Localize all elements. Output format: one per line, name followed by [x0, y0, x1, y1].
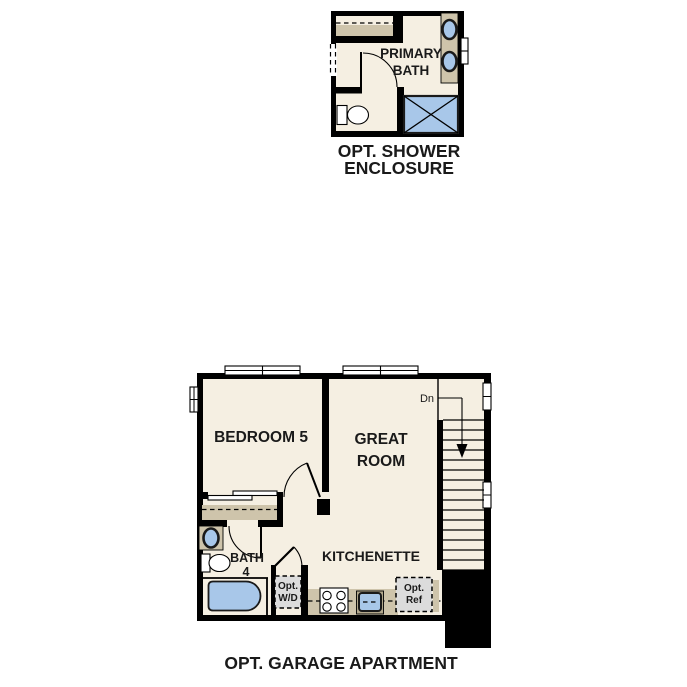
- stair-window-lower: [483, 482, 491, 508]
- kitchenette-label: KITCHENETTE: [322, 548, 420, 564]
- bath-window: [461, 38, 468, 64]
- counter-end-strip: [433, 580, 439, 612]
- washer-dryer-label-line1: Opt.: [278, 581, 298, 592]
- primary-bath-label-line2: BATH: [393, 63, 430, 78]
- closet-shelf: [202, 505, 277, 520]
- shower-enclosure: [404, 96, 458, 133]
- bedroom-window: [225, 366, 300, 375]
- primary-bath-plan: PRIMARY BATH: [329, 11, 468, 137]
- sink-basin: [204, 529, 219, 548]
- great-room-label-line2: ROOM: [357, 453, 405, 470]
- stairs-dn-label: Dn: [420, 393, 434, 405]
- primary-bath-label-line1: PRIMARY: [380, 46, 442, 61]
- bedroom-label: BEDROOM 5: [214, 429, 308, 446]
- great-room-label-line1: GREAT: [354, 431, 408, 448]
- floor-plan-page: PRIMARY BATH OPT. SHOWER ENCLOSURE: [0, 0, 687, 687]
- sink-basin: [443, 52, 457, 71]
- bathtub: [209, 582, 261, 611]
- stair-window-upper: [483, 383, 491, 410]
- toilet: [337, 106, 369, 125]
- sink-basin: [443, 20, 457, 39]
- fridge-label-line1: Opt.: [404, 583, 424, 594]
- floor-plan-canvas: PRIMARY BATH OPT. SHOWER ENCLOSURE: [0, 0, 687, 687]
- stair-rail-wall: [437, 420, 443, 570]
- bath4-label-line2: 4: [243, 565, 250, 579]
- bath-left-opening: [329, 44, 337, 76]
- closet-slider-panel: [208, 496, 252, 501]
- fridge-label-line2: Ref: [406, 595, 423, 606]
- closet-shelf: [336, 25, 393, 36]
- stair-mass: [442, 570, 491, 648]
- great-room-window: [343, 366, 418, 375]
- bath4-label-line1: BATH: [230, 551, 264, 565]
- kitchen-sink: [357, 591, 384, 614]
- double-vanity: [441, 13, 458, 83]
- left-wall-window: [190, 387, 198, 412]
- bath4-toilet: [201, 554, 230, 572]
- apartment-caption: OPT. GARAGE APARTMENT: [224, 653, 458, 673]
- stove: [320, 588, 348, 613]
- bath4-vanity: [199, 526, 223, 550]
- washer-dryer-label-line2: W/D: [278, 593, 297, 604]
- closet-slider-panel: [233, 491, 277, 496]
- garage-apartment-plan: Opt. W/D Opt. Ref: [190, 366, 491, 648]
- shower-caption-line2: ENCLOSURE: [344, 158, 454, 178]
